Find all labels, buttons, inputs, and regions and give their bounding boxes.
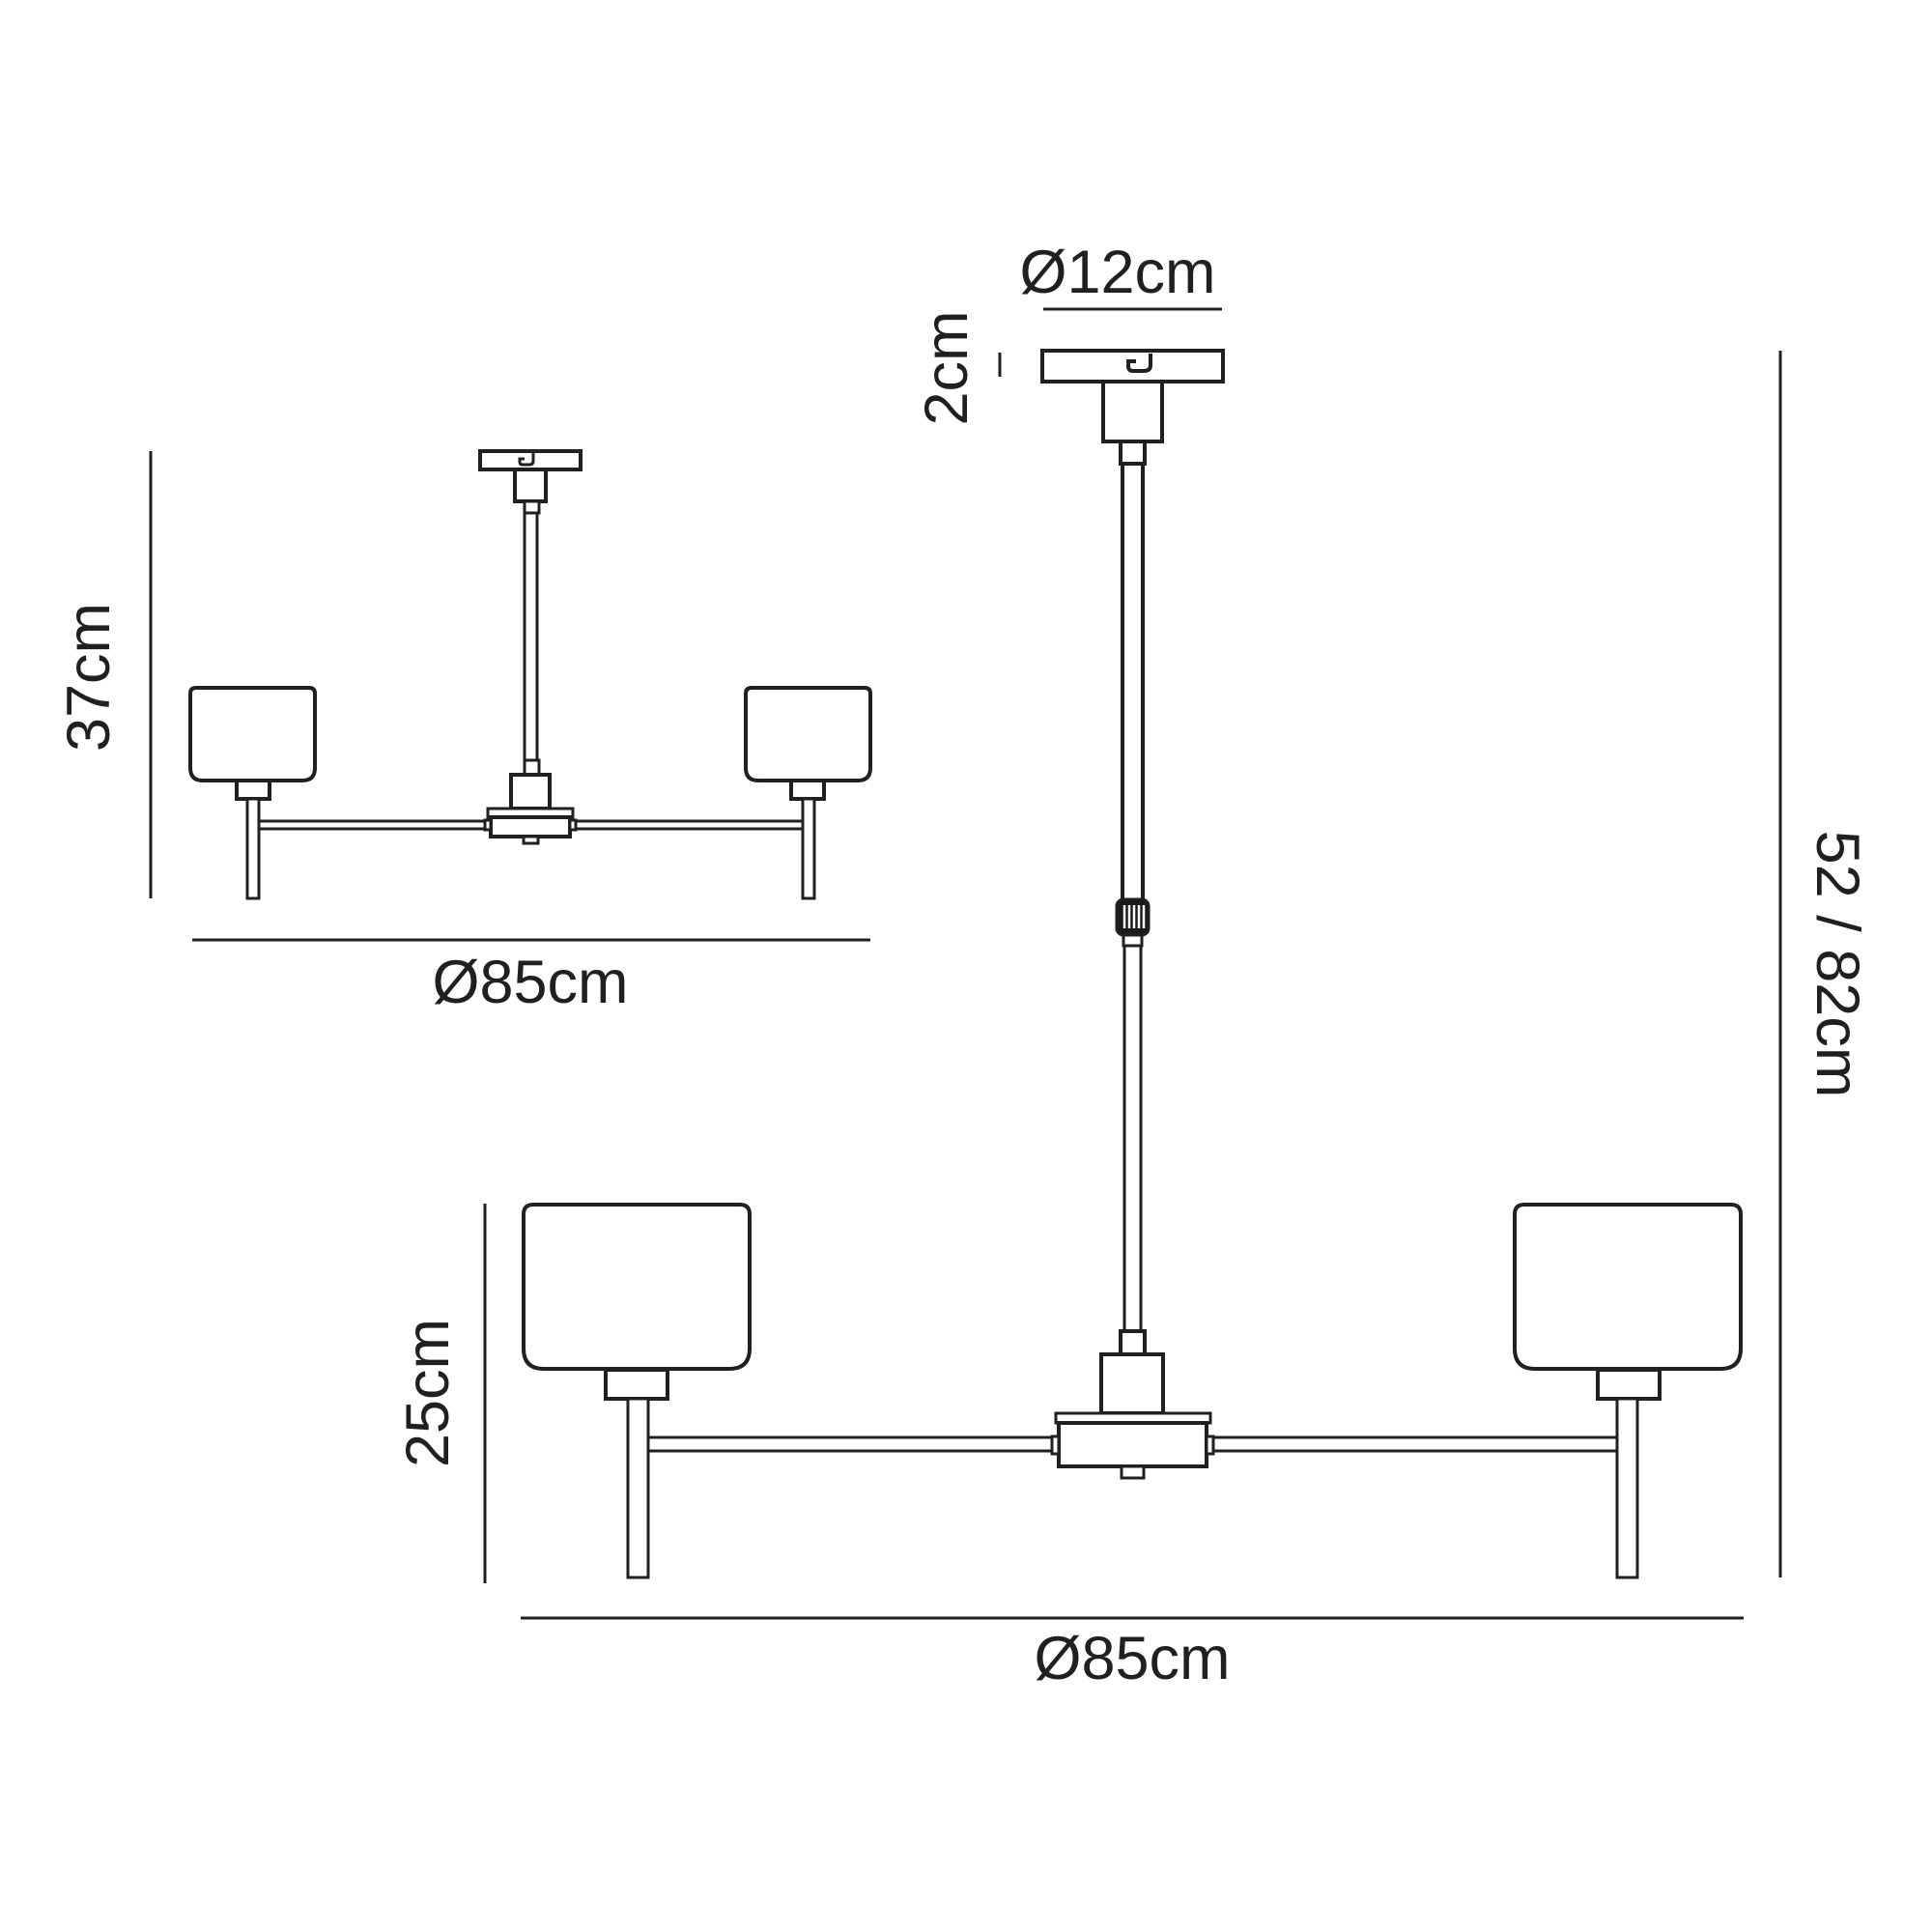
rod-coupler [525, 501, 539, 513]
canopy-socket [515, 469, 546, 501]
left-stem [247, 799, 259, 898]
rod-coupler [525, 760, 539, 775]
right-lampholder [791, 781, 824, 799]
right-stem [1617, 1399, 1637, 1577]
upper-rod [1122, 464, 1143, 900]
right-arm [576, 821, 808, 829]
right-lampholder [1598, 1370, 1660, 1399]
left-shade [524, 1205, 750, 1369]
left-stem [628, 1399, 648, 1577]
lower-rod [1124, 946, 1141, 1331]
shade-height-label: 25cm [394, 1319, 462, 1467]
left-arm [638, 1437, 1052, 1451]
left-lampholder [606, 1370, 668, 1399]
left-arm [255, 821, 485, 829]
right-shade [1515, 1205, 1741, 1369]
right-arm [1213, 1437, 1628, 1451]
canopy-height-label: 2cm [913, 310, 980, 425]
ceiling-plate [1042, 351, 1223, 382]
dimension-diagram: 37cm Ø85cm [0, 0, 1932, 1932]
view-semi-flush: 37cm Ø85cm [55, 451, 870, 1016]
diameter-dimension-label: Ø85cm [1034, 1625, 1230, 1692]
center-body [511, 775, 550, 809]
left-shade [190, 688, 315, 781]
center-hub [491, 817, 570, 837]
ceiling-plate [480, 451, 581, 469]
knob-base [1123, 935, 1142, 946]
center-body [1101, 1354, 1163, 1413]
canopy-socket [1103, 382, 1162, 441]
right-stem [803, 799, 814, 898]
canopy-diameter-label: Ø12cm [1019, 239, 1215, 306]
center-hub [1059, 1423, 1207, 1466]
right-shade [746, 688, 870, 781]
drop-height-label: 52 / 82cm [1804, 831, 1871, 1098]
height-dimension-label: 37cm [55, 603, 123, 752]
hub-finial [1122, 1466, 1144, 1478]
rod-coupler [1121, 441, 1145, 464]
diameter-dimension-label: Ø85cm [432, 949, 628, 1016]
left-lampholder [237, 781, 270, 799]
rod-coupler [1121, 1331, 1145, 1354]
hanging-rod [525, 513, 537, 760]
diagram-canvas: 37cm Ø85cm [0, 0, 1932, 1932]
hub-finial [524, 837, 538, 843]
